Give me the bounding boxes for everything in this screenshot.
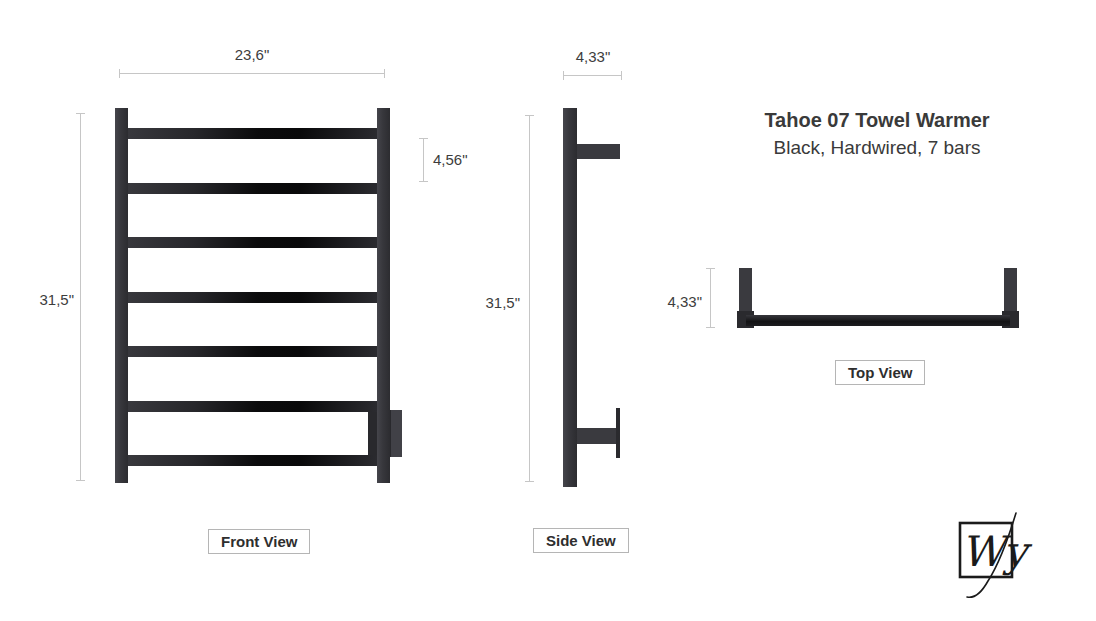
front-view-label: Front View — [208, 529, 310, 554]
side-view-label-text: Side View — [546, 532, 616, 549]
side-bracket-mount-plate — [616, 408, 620, 458]
front-bar-spacing-dimension-label: 4,56" — [433, 151, 468, 168]
side-rail — [563, 108, 577, 487]
front-bar — [121, 346, 384, 357]
side-top-bracket — [577, 144, 620, 159]
side-height-dimension-label: 31,5" — [472, 294, 520, 311]
product-subtitle: Black, Hardwired, 7 bars — [715, 134, 1039, 161]
front-right-rail — [377, 108, 390, 483]
brand-logo: Wy — [940, 505, 1050, 617]
side-depth-dimension-line — [563, 75, 622, 76]
front-width-dimension-line — [119, 73, 385, 74]
front-bar — [121, 128, 384, 139]
top-left-bracket — [739, 268, 752, 314]
front-bar — [121, 183, 384, 194]
front-bar — [121, 292, 384, 303]
front-left-rail — [115, 108, 128, 483]
product-dimension-diagram: 23,6" 31,5" 4,56" Front View 4,33" 31,5"… — [0, 0, 1096, 621]
product-title-block: Tahoe 07 Towel Warmer Black, Hardwired, … — [715, 107, 1039, 161]
top-view-label-text: Top View — [848, 364, 912, 381]
front-height-dimension-line — [80, 113, 81, 481]
front-height-dimension-label: 31,5" — [22, 291, 74, 308]
top-depth-dimension-line — [710, 268, 711, 328]
top-right-bracket — [1004, 268, 1017, 314]
side-view-label: Side View — [533, 528, 629, 553]
front-view-label-text: Front View — [221, 533, 297, 550]
front-width-dimension-label: 23,6" — [119, 46, 385, 63]
front-bars — [121, 128, 384, 478]
top-view-bar — [746, 315, 1010, 326]
side-height-dimension-line — [529, 115, 530, 482]
front-bar — [121, 237, 384, 248]
front-bar-spacing-dimension-line — [423, 138, 424, 182]
side-bottom-bracket — [577, 428, 617, 444]
front-bar — [121, 401, 384, 412]
logo-monogram: Wy — [961, 527, 1033, 576]
product-title: Tahoe 07 Towel Warmer — [715, 107, 1039, 134]
top-depth-dimension-label: 4,33" — [652, 293, 702, 310]
top-view-label: Top View — [835, 360, 925, 385]
side-depth-dimension-label: 4,33" — [558, 48, 628, 65]
front-bar — [121, 455, 384, 466]
